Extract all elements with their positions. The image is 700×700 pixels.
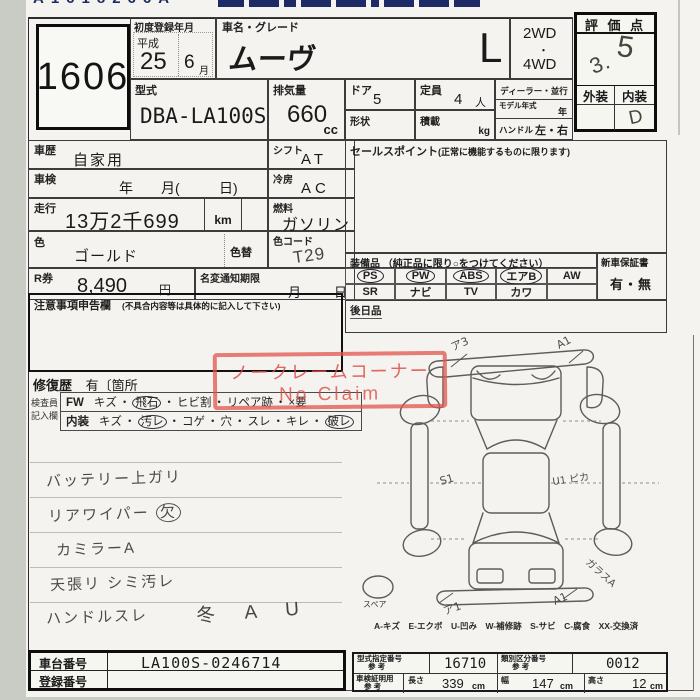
score-box: 評 価 点 3. 5 外装 内装 D: [574, 12, 657, 132]
capacity-label: 定員: [420, 82, 442, 98]
payload-unit: kg: [478, 126, 490, 137]
shift-cell: シフト AT: [268, 140, 355, 169]
no-claim-stamp-jp: ノークレームコーナー: [217, 357, 443, 385]
reg-year: 25: [140, 48, 167, 76]
equipment-item-TV: TV: [446, 284, 496, 300]
aircon-label: 冷房: [273, 171, 293, 186]
caution-label: 注意事項申告欄: [34, 297, 111, 313]
equipment-item-PS: PS: [345, 268, 395, 284]
width-label: 幅: [501, 675, 509, 686]
warranty-value: 有・無: [610, 274, 652, 293]
inspector-label-2: 記入欄: [31, 409, 58, 422]
diagram-mark-rear-right: A1: [551, 590, 570, 608]
aircon-cell: 冷房 AC: [268, 169, 355, 198]
lot-number: 1606: [37, 56, 130, 99]
fuel-cell: 燃料 ガソリン: [268, 198, 355, 231]
displacement-value: 660: [287, 101, 327, 129]
drive-4wd: 4WD: [523, 56, 556, 73]
reg-month-unit: 月: [199, 62, 209, 77]
shaken-month: 月(: [161, 178, 180, 198]
model-code-cell: 型式 DBA-LA100S: [130, 79, 268, 140]
mileage-label: 走行: [34, 200, 56, 216]
model-year-label: モデル年式: [499, 102, 537, 110]
separator-dot: ・: [207, 416, 219, 428]
class-cert-label: 類別区分番号: [498, 654, 572, 663]
chassis-table: 車台番号 LA100S-0246714 登録番号: [28, 650, 346, 691]
sales-point-note: (正常に機能するものに限ります): [438, 145, 570, 158]
diagram-mark-front-left: ア3: [449, 335, 471, 354]
doors-value: 5: [373, 91, 381, 108]
equipment-item-ABS: ABS: [446, 268, 496, 284]
equipment-grid: PSPWABSエアBAWSRナビTVカワ: [345, 268, 597, 300]
sales-point-label: セールスポイント: [350, 143, 438, 159]
dims-sub: 参 考: [354, 683, 403, 691]
chassis-label: 車台番号: [39, 655, 87, 672]
shaken-day: 日): [219, 178, 238, 198]
color-code-value: T29: [292, 244, 327, 268]
inspector-item: キレ: [286, 416, 309, 428]
payload-cell: 積載 kg: [415, 110, 495, 140]
displacement-cell: 排気量 660 cc: [268, 79, 345, 140]
separator-dot: ・: [163, 397, 175, 409]
equipment-header: 装備品 （純正品に限り○をつけてください）: [345, 253, 597, 268]
score-label: 評 価 点: [577, 15, 654, 34]
diagram-mark-side-left: S1: [438, 472, 455, 488]
sales-point-box: セールスポイント (正常に機能するものに限ります): [345, 140, 667, 253]
chassis-value: LA100S-0246714: [141, 654, 281, 672]
car-name-cell: 車名・グレード ムーヴ L: [216, 17, 510, 79]
inspector-label-1: 検査員: [31, 396, 58, 409]
header-title-fragment: [218, 0, 480, 7]
inspector-item: 汚レ: [138, 415, 167, 429]
diagram-mark-side-right: U1 ピカ: [552, 471, 590, 488]
capacity-cell: 定員 4 人: [415, 79, 495, 110]
scan-edge: [678, 0, 680, 135]
shape-label: 形状: [350, 113, 370, 128]
mileage-unit: km: [214, 213, 231, 227]
length-unit: cm: [472, 681, 485, 691]
inspector-item: キズ: [99, 416, 122, 428]
displacement-unit: cc: [324, 122, 338, 137]
diagram-mark-front-right: A1: [554, 333, 573, 351]
later-goods-label: 後日品: [350, 303, 382, 319]
score-value-2: 5: [615, 30, 637, 66]
equipment-item-エアB: エアB: [496, 268, 546, 284]
length-label: 長さ: [408, 675, 424, 686]
class-cert-sub: 参 考: [498, 663, 572, 671]
dealer-parallel-label: ディーラー・並行: [496, 80, 572, 100]
sheet-right-border: [693, 335, 694, 691]
inspector-interior-row: 内装キズ・汚レ・コゲ・穴・スレ・キレ・破レ: [60, 411, 362, 431]
separator-dot: ・: [234, 416, 246, 428]
doors-cell: ドア 5: [345, 79, 415, 110]
separator-dot: ・: [311, 416, 323, 428]
model-code-label: 型式: [135, 82, 157, 98]
diagram-mark-rear-right-side: ガラスA: [583, 556, 618, 590]
interior-grade: D: [627, 106, 646, 131]
name-change-label: 名変通知期限: [200, 270, 260, 285]
color-code-cell: 色コード T29: [268, 231, 355, 268]
doors-label: ドア: [350, 82, 372, 98]
repair-history-label: 修復歴: [33, 378, 72, 393]
inspector-item: キズ: [94, 397, 117, 409]
equipment-item-AW: AW: [547, 268, 597, 284]
shaken-label: 車検: [34, 171, 56, 187]
type-cert-value: 16710: [444, 656, 486, 672]
later-goods-box: 後日品: [345, 300, 667, 333]
separator-dot: ・: [273, 416, 285, 428]
shaken-year: 年: [119, 178, 133, 198]
shift-value: AT: [301, 151, 327, 168]
model-code-value: DBA-LA100S: [140, 104, 266, 128]
header-lot-code: A1618266A: [33, 0, 223, 7]
no-claim-stamp-en: No Claim: [217, 383, 443, 407]
height-label: 高さ: [588, 675, 604, 686]
inspector-item: スレ: [248, 416, 271, 428]
exterior-label: 外装: [577, 86, 615, 104]
car-name: ムーヴ: [227, 36, 318, 78]
auction-sheet-scan: A1618266A 1606 初度登録年月 平成 25 6 月 車名・グレード …: [0, 0, 700, 700]
drive-type-cell: 2WD ・ 4WD: [510, 17, 573, 79]
separator-dot: ・: [119, 397, 131, 409]
mileage-cell: 走行 13万2千699 km: [28, 198, 268, 231]
separator-dot: ・: [169, 416, 181, 428]
r-ticket-label: R券: [34, 270, 53, 286]
mileage-value: 13万2千699: [65, 205, 180, 234]
history-cell: 車歴 自家用: [28, 140, 268, 169]
reg-month: 6: [184, 52, 195, 74]
caution-note: (不具合内容等は具体的に記入して下さい): [122, 300, 280, 312]
color-value: ゴールド: [74, 245, 138, 266]
history-label: 車歴: [34, 142, 56, 158]
warranty-label: 新車保証書: [601, 255, 649, 269]
equipment-item-ナビ: ナビ: [395, 284, 445, 300]
capacity-unit: 人: [475, 94, 486, 110]
equipment-item-PW: PW: [395, 268, 445, 284]
history-value: 自家用: [73, 149, 124, 170]
equipment-item-blank: [547, 284, 597, 300]
height-unit: cm: [650, 681, 663, 691]
color-cell: 色 ゴールド 色替: [28, 231, 268, 268]
type-cert-sub: 参 考: [354, 663, 429, 671]
class-cert-value: 0012: [606, 656, 640, 672]
shaken-cell: 車検 年 月( 日): [28, 169, 268, 198]
aircon-value: AC: [301, 180, 330, 197]
width-unit: cm: [560, 681, 573, 691]
inspector-item: ヒビ割: [177, 397, 212, 409]
displacement-label: 排気量: [273, 82, 306, 98]
separator-dot: ・: [124, 416, 136, 428]
equipment-item-カワ: カワ: [496, 284, 546, 300]
score-value: 3.: [586, 48, 615, 80]
drive-2wd: 2WD: [523, 25, 556, 42]
inspector-row-prefix: FW: [66, 397, 84, 409]
interior-label: 内装: [615, 86, 654, 104]
inspector-row-prefix: 内装: [66, 416, 89, 428]
first-registration-cell: 初度登録年月 平成 25 6 月: [130, 17, 216, 79]
damage-legend: A-キズ E-エクボ U-凹み W-補修跡 S-サビ C-腐食 XX-交換済: [374, 620, 638, 632]
type-cert-label: 型式指定番号: [354, 654, 429, 663]
shift-label: シフト: [273, 142, 303, 157]
car-grade: L: [479, 24, 502, 72]
inspector-item: コゲ: [182, 416, 205, 428]
diagram-mark-rear-left: ア1: [442, 599, 463, 617]
payload-label: 積載: [420, 113, 440, 128]
height-value: 12: [632, 676, 646, 691]
shape-cell: 形状: [345, 110, 415, 140]
width-value: 147: [532, 676, 554, 691]
plate-label: 登録番号: [39, 673, 87, 690]
color-label: 色: [34, 234, 45, 250]
color-change-label: 色替: [230, 244, 252, 260]
repair-history-value: 有〔箇所: [86, 378, 138, 393]
warranty-cell: 新車保証書 有・無: [597, 253, 667, 300]
cert-table: 型式指定番号 参 考 16710 類別区分番号 参 考 0012 車検証明用 参…: [352, 652, 668, 692]
steering-value: 左・右: [535, 122, 568, 138]
dealer-column: ディーラー・並行 モデル年式 年 ハンドル 左・右: [495, 79, 573, 140]
model-year-unit: 年: [558, 105, 567, 118]
no-claim-stamp: ノークレームコーナー No Claim: [213, 351, 448, 410]
lot-number-box: 1606: [36, 24, 130, 130]
spare-tire-label: スペア: [363, 600, 386, 609]
capacity-value: 4: [454, 91, 462, 108]
length-value: 339: [442, 676, 464, 691]
car-name-label: 車名・グレード: [222, 19, 299, 35]
equipment-item-SR: SR: [345, 284, 395, 300]
inspector-item: 飛石: [132, 396, 161, 410]
steering-label: ハンドル: [499, 124, 533, 136]
inspector-item: 穴: [221, 416, 233, 428]
